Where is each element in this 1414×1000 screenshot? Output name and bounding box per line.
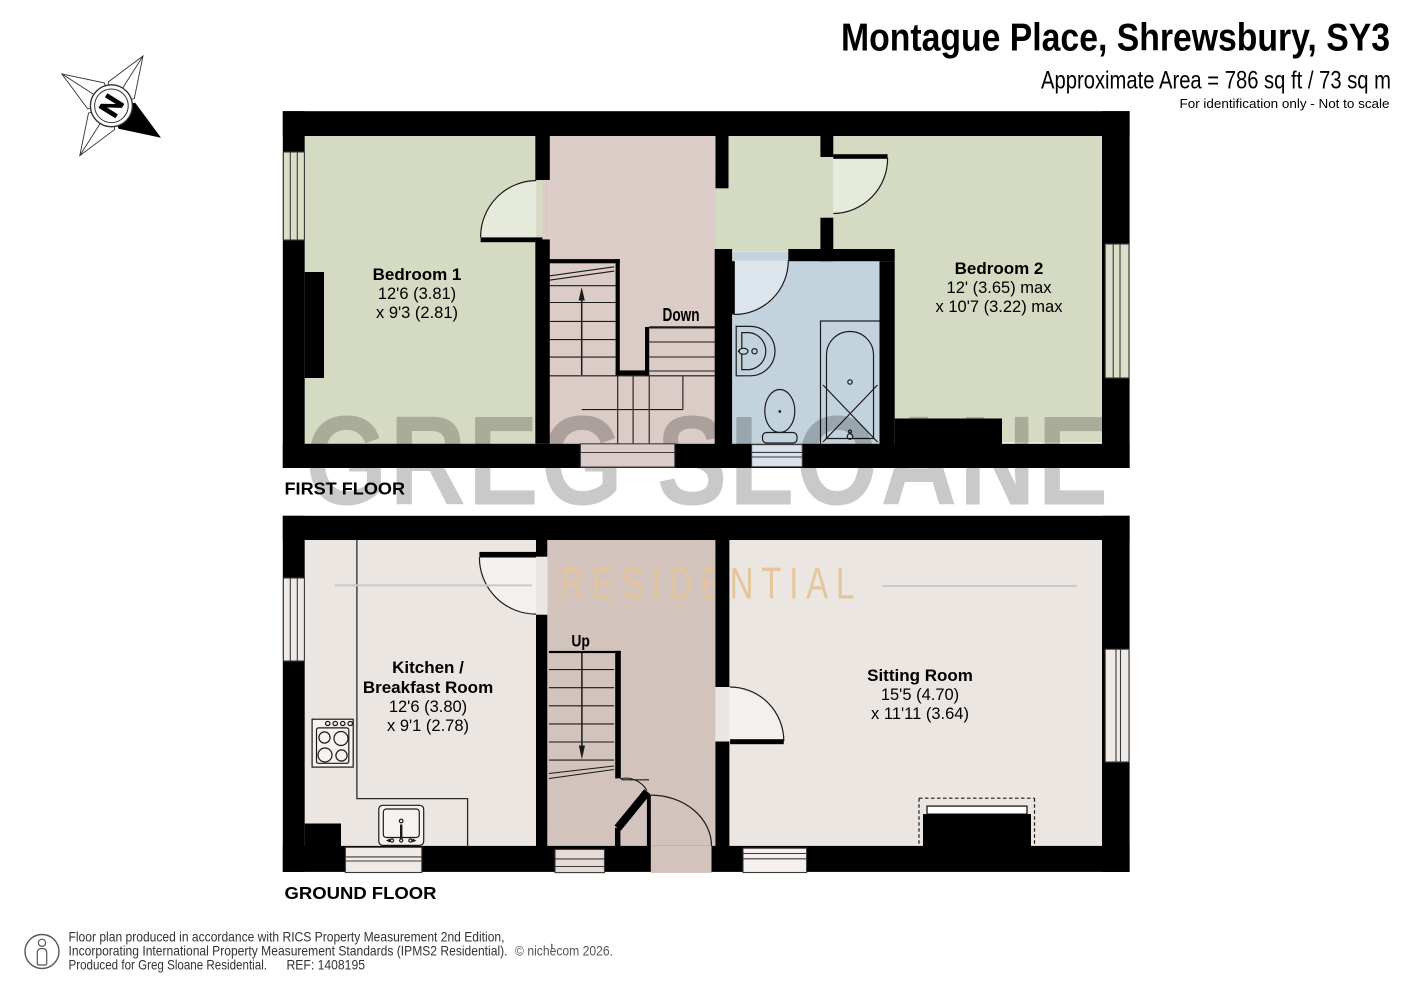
svg-text:Approximate Area = 786 sq ft /: Approximate Area = 786 sq ft / 73 sq m: [1041, 67, 1391, 95]
svg-text:Montague Place, Shrewsbury, SY: Montague Place, Shrewsbury, SY3: [841, 17, 1390, 60]
svg-text:Up: Up: [571, 632, 590, 650]
svg-text:Down: Down: [663, 305, 700, 325]
svg-text:FIRST FLOOR: FIRST FLOOR: [285, 479, 406, 499]
svg-text:Produced for Greg Sloane Resid: Produced for Greg Sloane Residential.: [69, 957, 268, 973]
svg-text:RESIDENTIAL: RESIDENTIAL: [561, 560, 855, 609]
svg-text:GROUND FLOOR: GROUND FLOOR: [285, 883, 437, 903]
svg-text:REF: 1408195: REF: 1408195: [287, 957, 366, 973]
svg-text:For identification only - Not: For identification only - Not to scale: [1180, 96, 1390, 111]
svg-text:© nichecom 2026.: © nichecom 2026.: [515, 943, 613, 959]
